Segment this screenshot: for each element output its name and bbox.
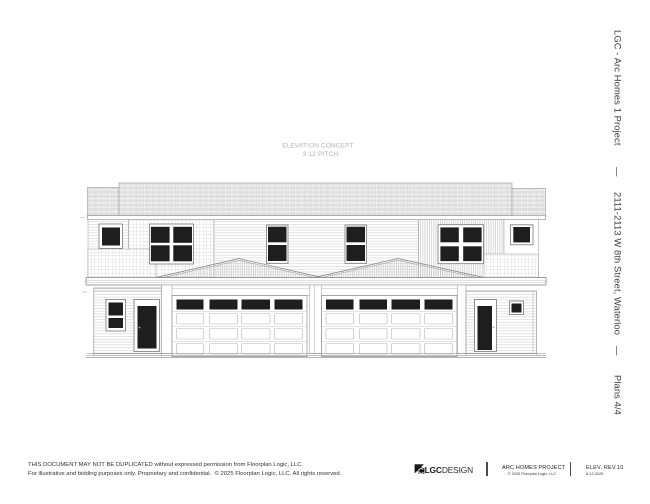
svg-text:3:12 PITCH: 3:12 PITCH	[303, 151, 339, 158]
svg-text:ELEVATION CONCEPT: ELEVATION CONCEPT	[282, 143, 354, 150]
